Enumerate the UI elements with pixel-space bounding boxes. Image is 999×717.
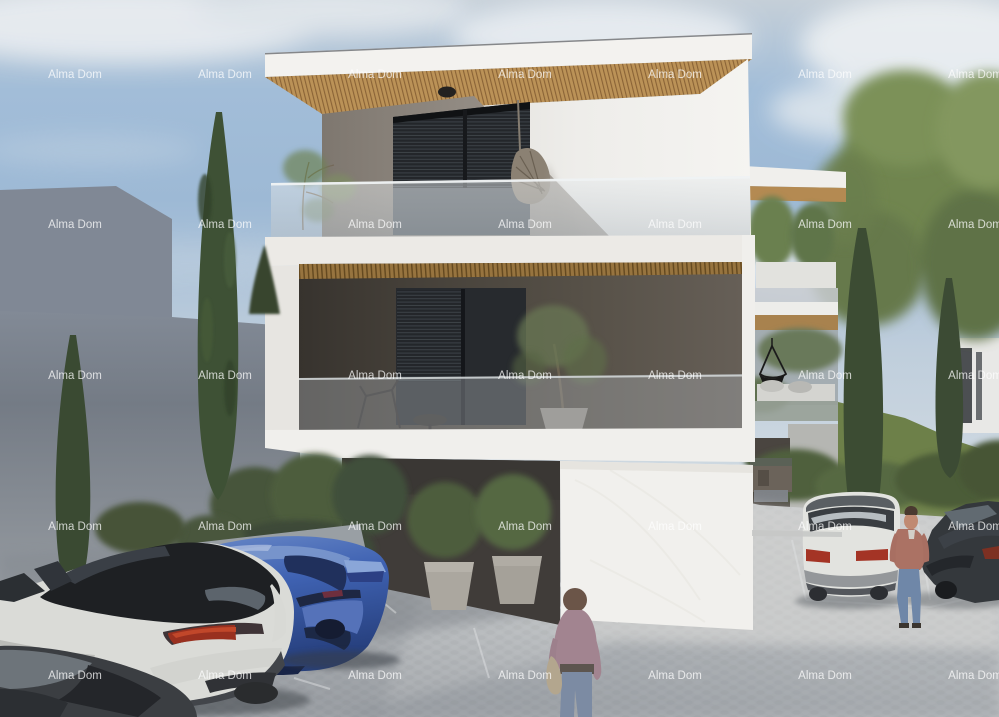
svg-text:Alma Dom: Alma Dom [198, 219, 252, 231]
svg-text:Alma Dom: Alma Dom [648, 670, 702, 682]
svg-text:Alma Dom: Alma Dom [48, 370, 102, 382]
svg-text:Alma Dom: Alma Dom [48, 69, 102, 81]
svg-text:Alma Dom: Alma Dom [348, 370, 402, 382]
svg-text:Alma Dom: Alma Dom [948, 670, 999, 682]
svg-text:Alma Dom: Alma Dom [348, 219, 402, 231]
svg-text:Alma Dom: Alma Dom [948, 69, 999, 81]
svg-text:Alma Dom: Alma Dom [798, 219, 852, 231]
svg-text:Alma Dom: Alma Dom [798, 670, 852, 682]
svg-text:Alma Dom: Alma Dom [948, 370, 999, 382]
svg-text:Alma Dom: Alma Dom [648, 521, 702, 533]
svg-text:Alma Dom: Alma Dom [198, 69, 252, 81]
svg-text:Alma Dom: Alma Dom [348, 69, 402, 81]
svg-text:Alma Dom: Alma Dom [498, 521, 552, 533]
svg-text:Alma Dom: Alma Dom [498, 370, 552, 382]
svg-text:Alma Dom: Alma Dom [198, 670, 252, 682]
svg-text:Alma Dom: Alma Dom [48, 670, 102, 682]
svg-text:Alma Dom: Alma Dom [48, 219, 102, 231]
svg-text:Alma Dom: Alma Dom [198, 370, 252, 382]
svg-text:Alma Dom: Alma Dom [198, 521, 252, 533]
svg-text:Alma Dom: Alma Dom [798, 370, 852, 382]
svg-text:Alma Dom: Alma Dom [648, 370, 702, 382]
svg-text:Alma Dom: Alma Dom [498, 670, 552, 682]
svg-text:Alma Dom: Alma Dom [498, 219, 552, 231]
svg-text:Alma Dom: Alma Dom [948, 521, 999, 533]
svg-text:Alma Dom: Alma Dom [348, 521, 402, 533]
svg-text:Alma Dom: Alma Dom [498, 69, 552, 81]
svg-text:Alma Dom: Alma Dom [348, 670, 402, 682]
svg-text:Alma Dom: Alma Dom [648, 69, 702, 81]
svg-text:Alma Dom: Alma Dom [948, 219, 999, 231]
svg-text:Alma Dom: Alma Dom [798, 521, 852, 533]
svg-text:Alma Dom: Alma Dom [648, 219, 702, 231]
svg-text:Alma Dom: Alma Dom [798, 69, 852, 81]
svg-text:Alma Dom: Alma Dom [48, 521, 102, 533]
